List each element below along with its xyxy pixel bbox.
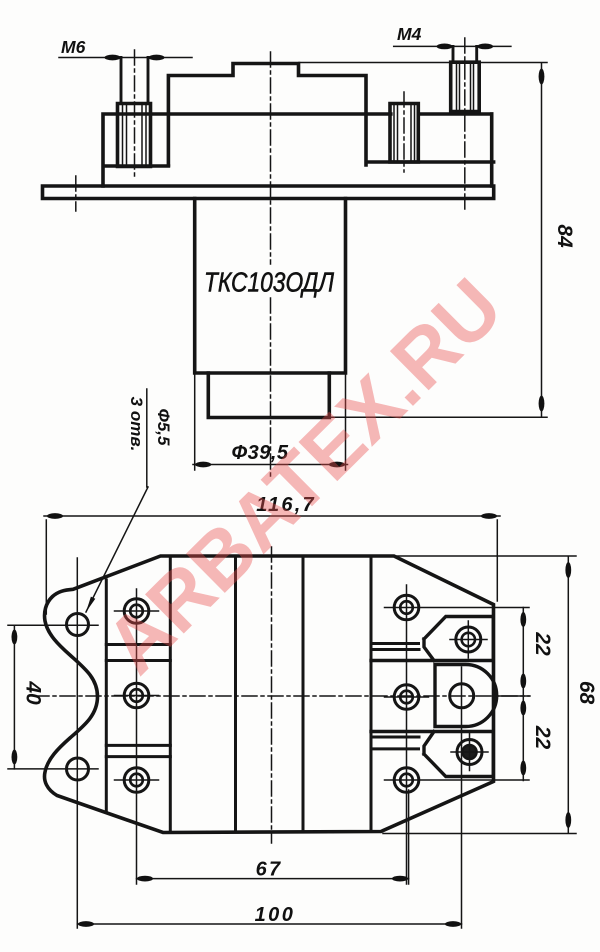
svg-text:Ф5,5: Ф5,5 <box>154 409 173 446</box>
svg-text:100: 100 <box>255 904 296 926</box>
svg-text:ТКС103ОДЛ: ТКС103ОДЛ <box>204 267 335 298</box>
svg-text:67: 67 <box>256 859 283 881</box>
svg-text:22: 22 <box>531 631 554 656</box>
svg-text:М4: М4 <box>397 24 422 44</box>
svg-text:84: 84 <box>553 224 576 248</box>
svg-text:68: 68 <box>575 681 598 705</box>
svg-text:М6: М6 <box>61 37 86 57</box>
svg-text:22: 22 <box>531 725 554 750</box>
svg-text:3 отв.: 3 отв. <box>127 397 146 452</box>
svg-text:40: 40 <box>22 680 45 705</box>
